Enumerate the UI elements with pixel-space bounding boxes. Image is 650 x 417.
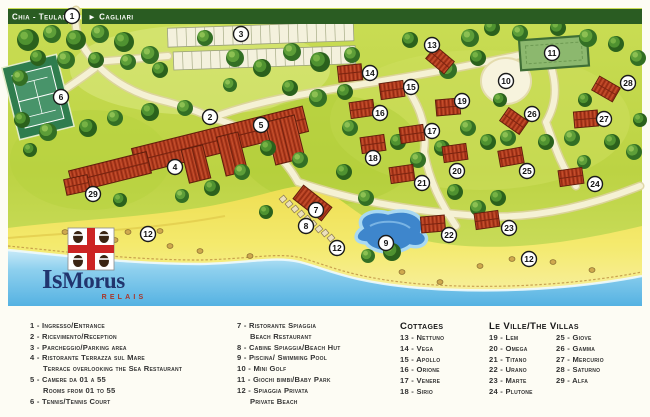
map-marker-4: 4 xyxy=(168,160,183,175)
map-marker-2: 2 xyxy=(203,110,218,125)
svg-text:22: 22 xyxy=(444,230,454,240)
legend-item: 3 - Parcheggio/Parking area xyxy=(30,343,235,354)
villa-building-20 xyxy=(442,143,468,162)
road-sign-bar: Chia - Teulada ◄ ► Cagliari xyxy=(8,9,642,24)
legend-item: 26 - Gamma xyxy=(556,344,623,355)
svg-text:24: 24 xyxy=(590,179,600,189)
svg-text:17: 17 xyxy=(427,126,437,136)
svg-text:21: 21 xyxy=(417,178,427,188)
legend-item: 17 - Venere xyxy=(400,376,488,387)
map-marker-1: 1 xyxy=(65,9,80,24)
legend-item: 23 - Marte xyxy=(489,376,556,387)
svg-text:29: 29 xyxy=(88,189,98,199)
map-marker-11: 11 xyxy=(545,46,560,61)
map-marker-28: 28 xyxy=(621,76,636,91)
svg-text:5: 5 xyxy=(259,120,264,130)
map-marker-12: 12 xyxy=(141,227,156,242)
svg-text:19: 19 xyxy=(457,96,467,106)
logo-title-morus: Morus xyxy=(62,268,125,293)
map-marker-7: 7 xyxy=(309,203,324,218)
legend-item: 22 - Urano xyxy=(489,365,556,376)
legend-item-continuation: Rooms from 01 to 55 xyxy=(30,386,235,397)
map-marker-8: 8 xyxy=(299,219,314,234)
legend-item: 5 - Camere da 01 a 55 xyxy=(30,375,235,386)
svg-text:18: 18 xyxy=(368,153,378,163)
map-marker-21: 21 xyxy=(415,176,430,191)
svg-text:8: 8 xyxy=(304,221,309,231)
villa-building-16 xyxy=(349,99,375,118)
legend-item: 13 - Nettuno xyxy=(400,333,488,344)
map-marker-5: 5 xyxy=(254,118,269,133)
villa-building-23 xyxy=(474,210,500,229)
sardinia-flag xyxy=(68,228,114,270)
map-marker-9: 9 xyxy=(379,236,394,251)
legend-item: 9 - Piscina/ Swimming Pool xyxy=(237,353,397,364)
legend-item: 4 - Ristorante Terrazza sul Mare xyxy=(30,353,235,364)
svg-text:26: 26 xyxy=(527,109,537,119)
map-marker-12: 12 xyxy=(330,241,345,256)
map-marker-18: 18 xyxy=(366,151,381,166)
svg-text:1: 1 xyxy=(70,11,75,21)
svg-text:12: 12 xyxy=(524,254,534,264)
svg-text:12: 12 xyxy=(332,243,342,253)
map-marker-12: 12 xyxy=(522,252,537,267)
resort-map-page: Chia - Teulada ◄ ► Cagliari 123456789101… xyxy=(0,0,650,417)
legend-item-continuation: Private Beach xyxy=(237,397,397,408)
svg-text:23: 23 xyxy=(504,223,514,233)
map-legend: 1 - Ingresso/Entrance2 - Ricevimento/Rec… xyxy=(0,314,650,417)
map-marker-22: 22 xyxy=(442,228,457,243)
logo-title-is: Is xyxy=(42,264,62,294)
map-marker-27: 27 xyxy=(597,112,612,127)
legend-item: 21 - Titano xyxy=(489,355,556,366)
map-marker-15: 15 xyxy=(404,80,419,95)
legend-item: 1 - Ingresso/Entrance xyxy=(30,321,235,332)
villa-building-21 xyxy=(389,164,415,183)
legend-item: 18 - Sirio xyxy=(400,387,488,398)
map-marker-14: 14 xyxy=(363,66,378,81)
svg-text:12: 12 xyxy=(143,229,153,239)
legend-item: 10 - Mini Golf xyxy=(237,364,397,375)
resort-logo: IsMorus RELAIS xyxy=(42,266,172,301)
legend-item: 27 - Mercurio xyxy=(556,355,623,366)
legend-item: 6 - Tennis/Tennis Court xyxy=(30,397,235,408)
svg-text:14: 14 xyxy=(365,68,375,78)
villa-building-27 xyxy=(573,110,598,128)
legend-item: 16 - Orione xyxy=(400,365,488,376)
legend-column-facilities-1: 1 - Ingresso/Entrance2 - Ricevimento/Rec… xyxy=(30,321,235,407)
map-marker-17: 17 xyxy=(425,124,440,139)
legend-item-continuation: Beach Restaurant xyxy=(237,332,397,343)
legend-column-cottages: Cottages 13 - Nettuno14 - Vega15 - Apoll… xyxy=(400,321,488,398)
legend-item: 14 - Vega xyxy=(400,344,488,355)
cottages-heading: Cottages xyxy=(400,321,488,332)
legend-item: 2 - Ricevimento/Reception xyxy=(30,332,235,343)
svg-text:15: 15 xyxy=(406,82,416,92)
map-marker-26: 26 xyxy=(525,107,540,122)
svg-text:2: 2 xyxy=(208,112,213,122)
sign-right: ► Cagliari xyxy=(88,13,134,22)
legend-item: 15 - Apollo xyxy=(400,355,488,366)
villa-building-14 xyxy=(337,64,363,82)
svg-text:13: 13 xyxy=(427,40,437,50)
svg-text:28: 28 xyxy=(623,78,633,88)
svg-text:11: 11 xyxy=(548,48,557,58)
legend-item: 7 - Ristorante Spiaggia xyxy=(237,321,397,332)
svg-text:20: 20 xyxy=(452,166,462,176)
villa-building-15 xyxy=(379,80,405,99)
svg-text:4: 4 xyxy=(173,162,178,172)
logo-subtitle: RELAIS xyxy=(42,294,172,301)
map-marker-16: 16 xyxy=(373,106,388,121)
legend-item: 8 - Cabine Spiaggia/Beach Hut xyxy=(237,343,397,354)
map-marker-29: 29 xyxy=(86,187,101,202)
svg-text:9: 9 xyxy=(384,238,389,248)
map-marker-13: 13 xyxy=(425,38,440,53)
map-marker-10: 10 xyxy=(499,74,514,89)
map-marker-3: 3 xyxy=(234,27,249,42)
svg-text:6: 6 xyxy=(59,92,64,102)
villa-building-22 xyxy=(420,215,445,233)
villa-building-17 xyxy=(399,124,425,143)
legend-item: 25 - Giove xyxy=(556,333,623,344)
legend-item: 11 - Giochi bimbi/Baby Park xyxy=(237,375,397,386)
legend-item: 28 - Saturno xyxy=(556,365,623,376)
legend-item: 24 - Plutone xyxy=(489,387,556,398)
villas-heading: Le Ville/The Villas xyxy=(489,321,649,332)
svg-text:3: 3 xyxy=(239,29,244,39)
legend-item: 19 - Lem xyxy=(489,333,556,344)
svg-text:27: 27 xyxy=(599,114,609,124)
legend-item-continuation: Terrace overlooking the Sea Restaurant xyxy=(30,364,235,375)
legend-item: 12 - Spiaggia Privata xyxy=(237,386,397,397)
legend-item: 29 - Alfa xyxy=(556,376,623,387)
svg-text:25: 25 xyxy=(522,166,532,176)
svg-text:7: 7 xyxy=(314,205,319,215)
map-marker-24: 24 xyxy=(588,177,603,192)
map-marker-20: 20 xyxy=(450,164,465,179)
legend-item: 20 - Omega xyxy=(489,344,556,355)
svg-text:10: 10 xyxy=(501,76,511,86)
map-marker-6: 6 xyxy=(54,90,69,105)
map-marker-23: 23 xyxy=(502,221,517,236)
map-marker-19: 19 xyxy=(455,94,470,109)
legend-column-facilities-2: 7 - Ristorante SpiaggiaBeach Restaurant8… xyxy=(237,321,397,407)
villa-building-24 xyxy=(558,167,584,186)
map-marker-25: 25 xyxy=(520,164,535,179)
svg-text:16: 16 xyxy=(375,108,385,118)
legend-column-villas: Le Ville/The Villas 19 - Lem20 - Omega21… xyxy=(489,321,649,398)
